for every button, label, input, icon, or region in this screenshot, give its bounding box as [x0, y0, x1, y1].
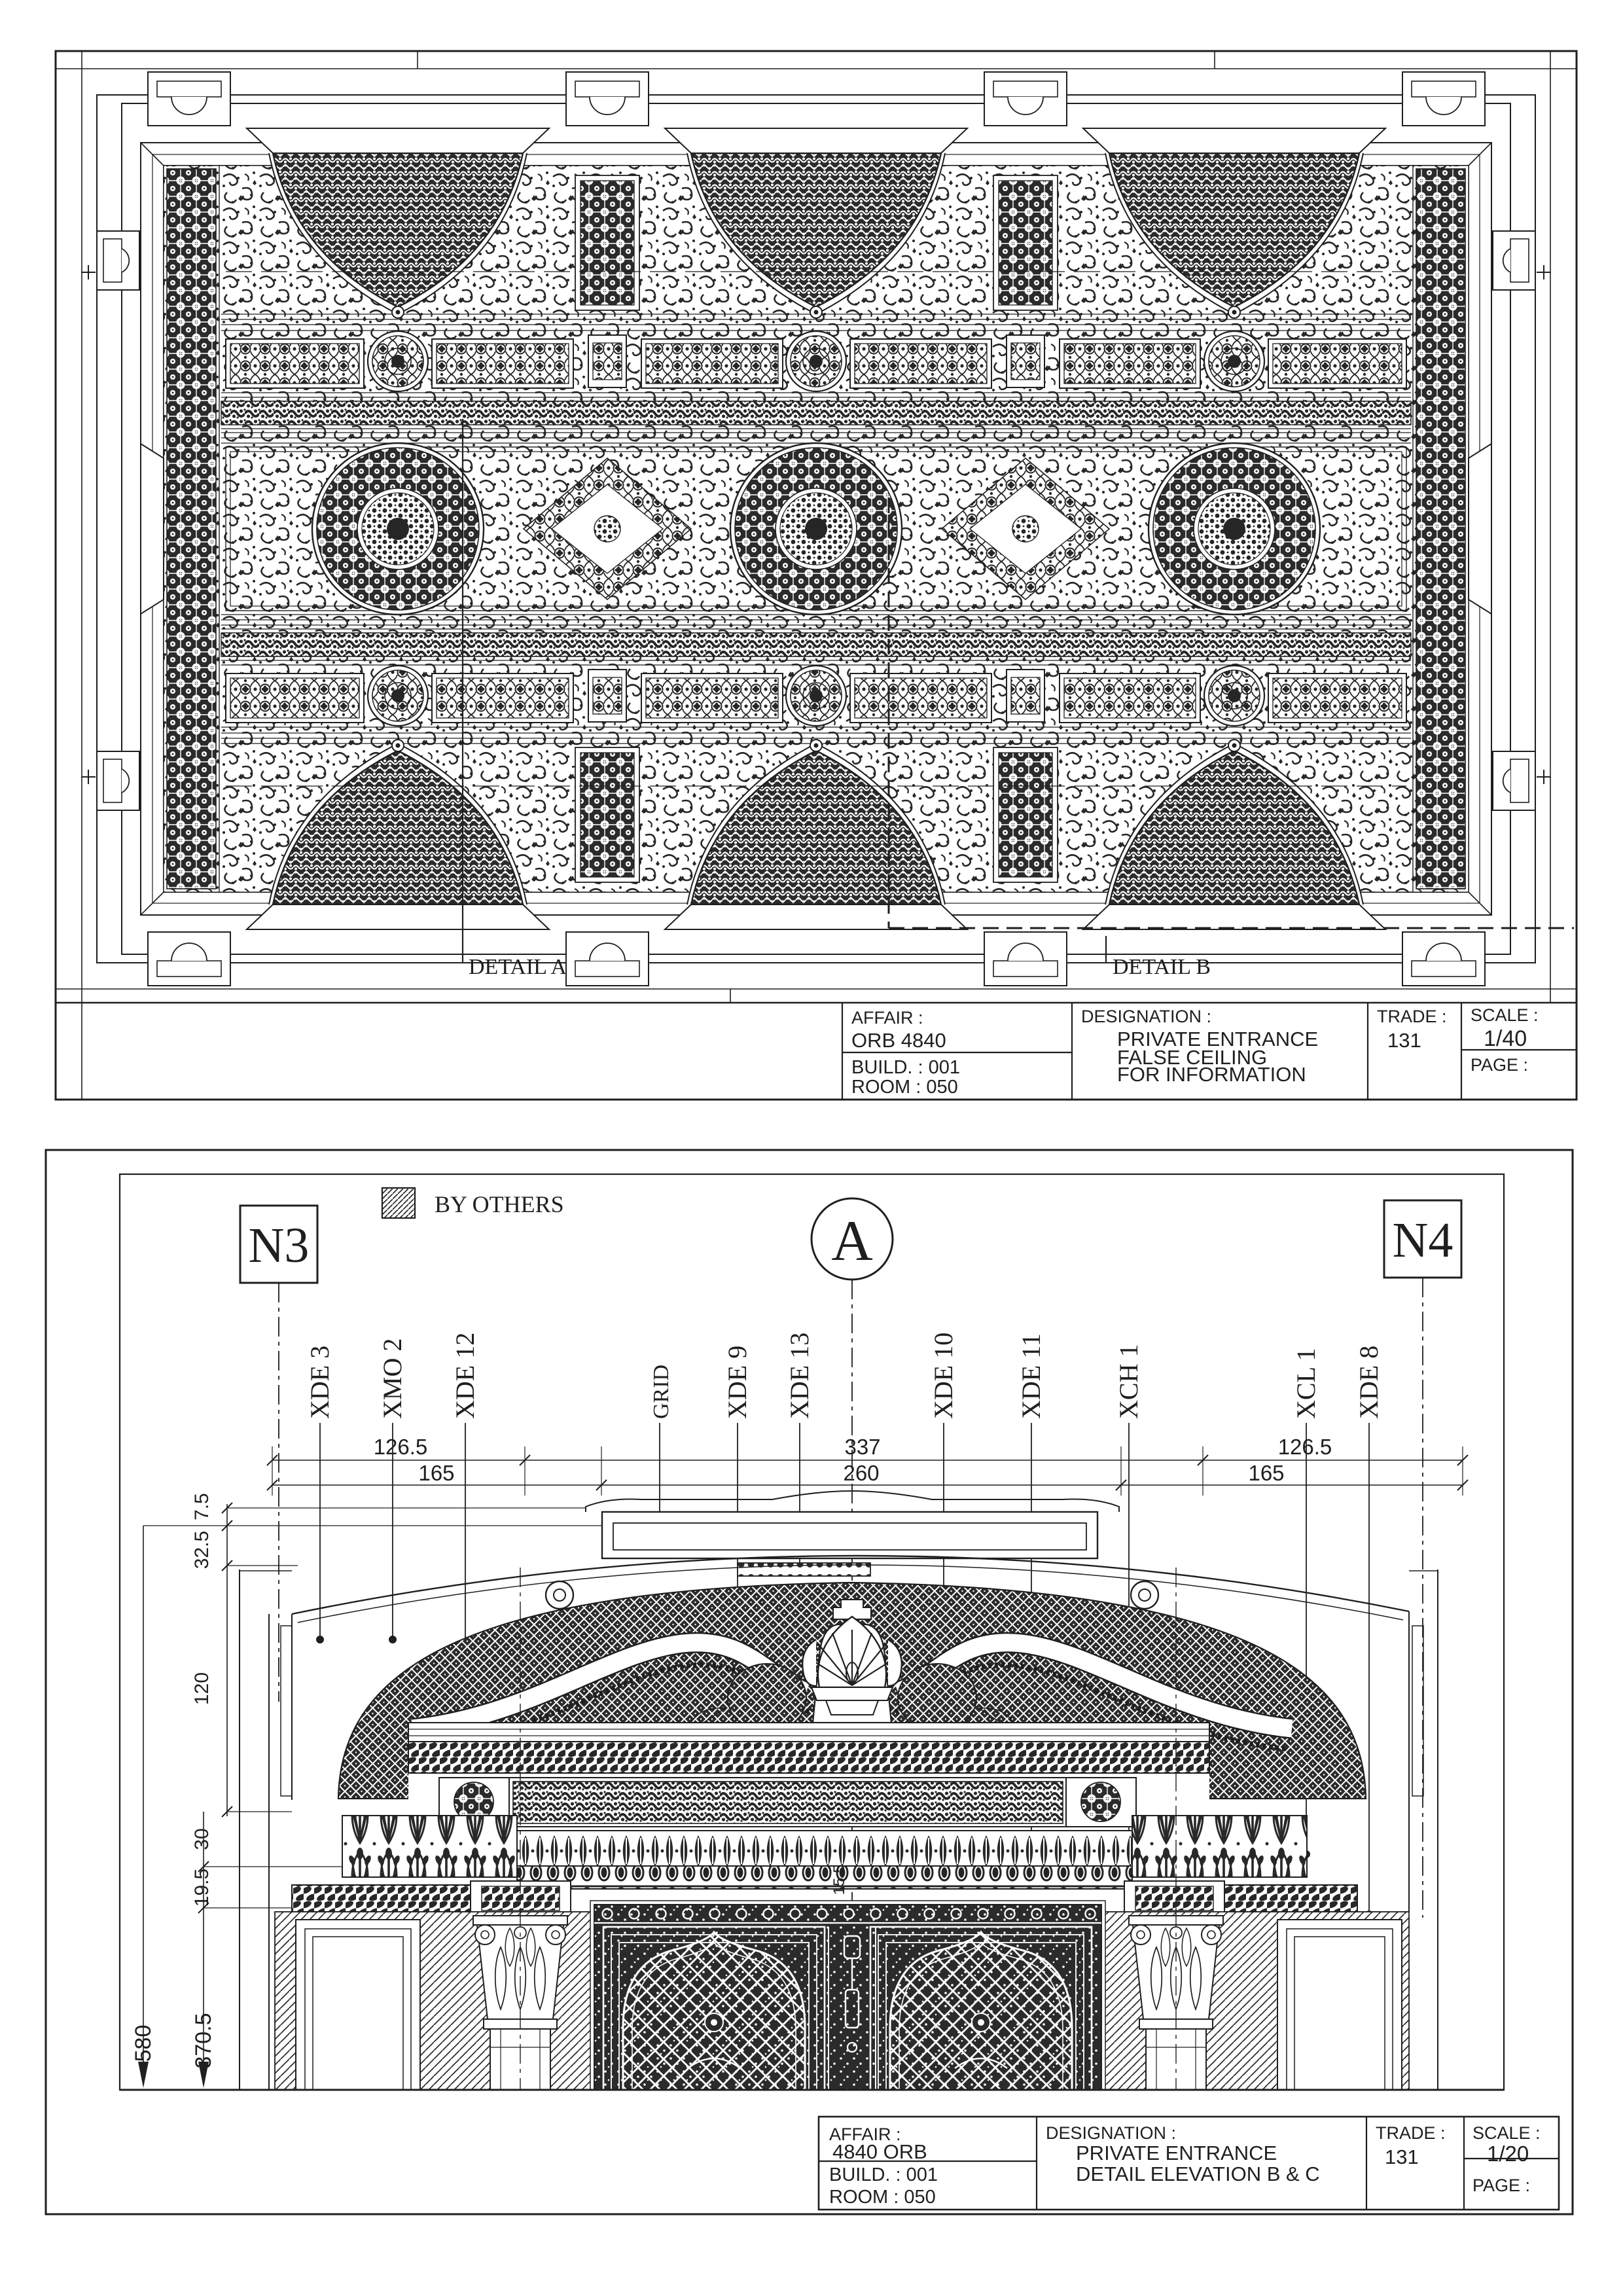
svg-text:126.5: 126.5 — [374, 1435, 428, 1459]
svg-text:DESIGNATION :: DESIGNATION : — [1081, 1007, 1211, 1026]
svg-text:131: 131 — [1385, 2145, 1419, 2168]
svg-text:120: 120 — [191, 1672, 213, 1705]
svg-text:580: 580 — [131, 2025, 156, 2062]
svg-text:PAGE :: PAGE : — [1471, 1055, 1528, 1075]
svg-text:1/40: 1/40 — [1484, 1026, 1527, 1051]
svg-text:337: 337 — [844, 1435, 880, 1459]
svg-text:DETAIL ELEVATION B & C: DETAIL ELEVATION B & C — [1076, 2162, 1320, 2185]
svg-text:XDE 3: XDE 3 — [305, 1346, 334, 1419]
svg-text:19.5: 19.5 — [191, 1869, 213, 1907]
svg-text:BY OTHERS: BY OTHERS — [435, 1191, 564, 1217]
svg-text:SCALE :: SCALE : — [1472, 2123, 1541, 2143]
svg-text:XCL 1: XCL 1 — [1291, 1348, 1321, 1419]
svg-text:TRADE :: TRADE : — [1377, 1007, 1447, 1026]
svg-text:BUILD. : 001: BUILD. : 001 — [829, 2164, 938, 2185]
svg-text:FOR INFORMATION: FOR INFORMATION — [1117, 1063, 1306, 1086]
svg-text:7.5: 7.5 — [191, 1493, 213, 1520]
svg-text:BUILD. : 001: BUILD. : 001 — [851, 1057, 960, 1078]
svg-text:126.5: 126.5 — [1278, 1435, 1332, 1459]
svg-text:GRID: GRID — [649, 1365, 673, 1419]
svg-text:370.5: 370.5 — [191, 2013, 216, 2068]
svg-text:260: 260 — [843, 1461, 879, 1485]
svg-text:XDE 13: XDE 13 — [785, 1333, 814, 1419]
svg-text:ORB 4840: ORB 4840 — [851, 1029, 946, 1052]
svg-text:N3: N3 — [249, 1218, 310, 1273]
svg-text:DESIGNATION :: DESIGNATION : — [1046, 2123, 1176, 2143]
svg-text:TRADE :: TRADE : — [1376, 2123, 1446, 2143]
svg-text:XDE 11: XDE 11 — [1016, 1333, 1046, 1419]
svg-text:30: 30 — [191, 1828, 213, 1850]
svg-text:XMO 2: XMO 2 — [378, 1338, 407, 1419]
svg-text:XDE 8: XDE 8 — [1354, 1346, 1383, 1419]
svg-text:XDE 10: XDE 10 — [929, 1333, 958, 1419]
svg-text:1/20: 1/20 — [1487, 2142, 1529, 2166]
svg-text:ROOM : 050: ROOM : 050 — [851, 1077, 958, 1098]
svg-text:ROOM : 050: ROOM : 050 — [829, 2187, 936, 2208]
svg-text:DETAIL A: DETAIL A — [469, 955, 567, 979]
svg-text:DETAIL B: DETAIL B — [1113, 955, 1211, 979]
svg-text:165: 165 — [1248, 1461, 1284, 1485]
svg-text:165: 165 — [418, 1461, 454, 1485]
svg-text:PRIVATE ENTRANCE: PRIVATE ENTRANCE — [1076, 2142, 1277, 2164]
svg-text:AFFAIR :: AFFAIR : — [851, 1008, 923, 1028]
svg-text:PAGE :: PAGE : — [1472, 2176, 1530, 2195]
svg-text:4840 ORB: 4840 ORB — [832, 2140, 927, 2163]
svg-text:15.5: 15.5 — [830, 1865, 848, 1895]
svg-text:131: 131 — [1387, 1029, 1421, 1052]
svg-text:XDE 12: XDE 12 — [450, 1333, 480, 1419]
svg-text:32.5: 32.5 — [191, 1531, 213, 1569]
svg-text:SCALE :: SCALE : — [1471, 1005, 1539, 1025]
svg-text:XCH 1: XCH 1 — [1114, 1344, 1143, 1419]
svg-text:A: A — [831, 1210, 873, 1273]
svg-text:N4: N4 — [1393, 1213, 1454, 1268]
svg-text:XDE 9: XDE 9 — [722, 1346, 752, 1419]
